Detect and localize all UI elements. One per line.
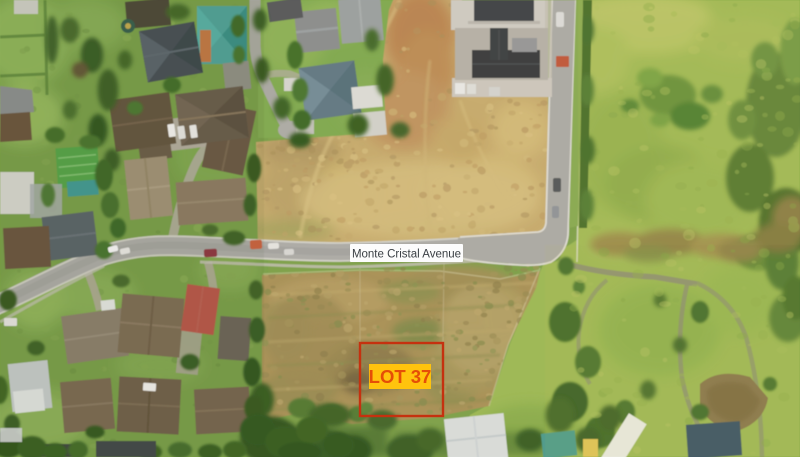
svg-text:Monte Cristal Avenue: Monte Cristal Avenue <box>352 249 461 261</box>
svg-text:LOT 37: LOT 37 <box>369 366 432 387</box>
